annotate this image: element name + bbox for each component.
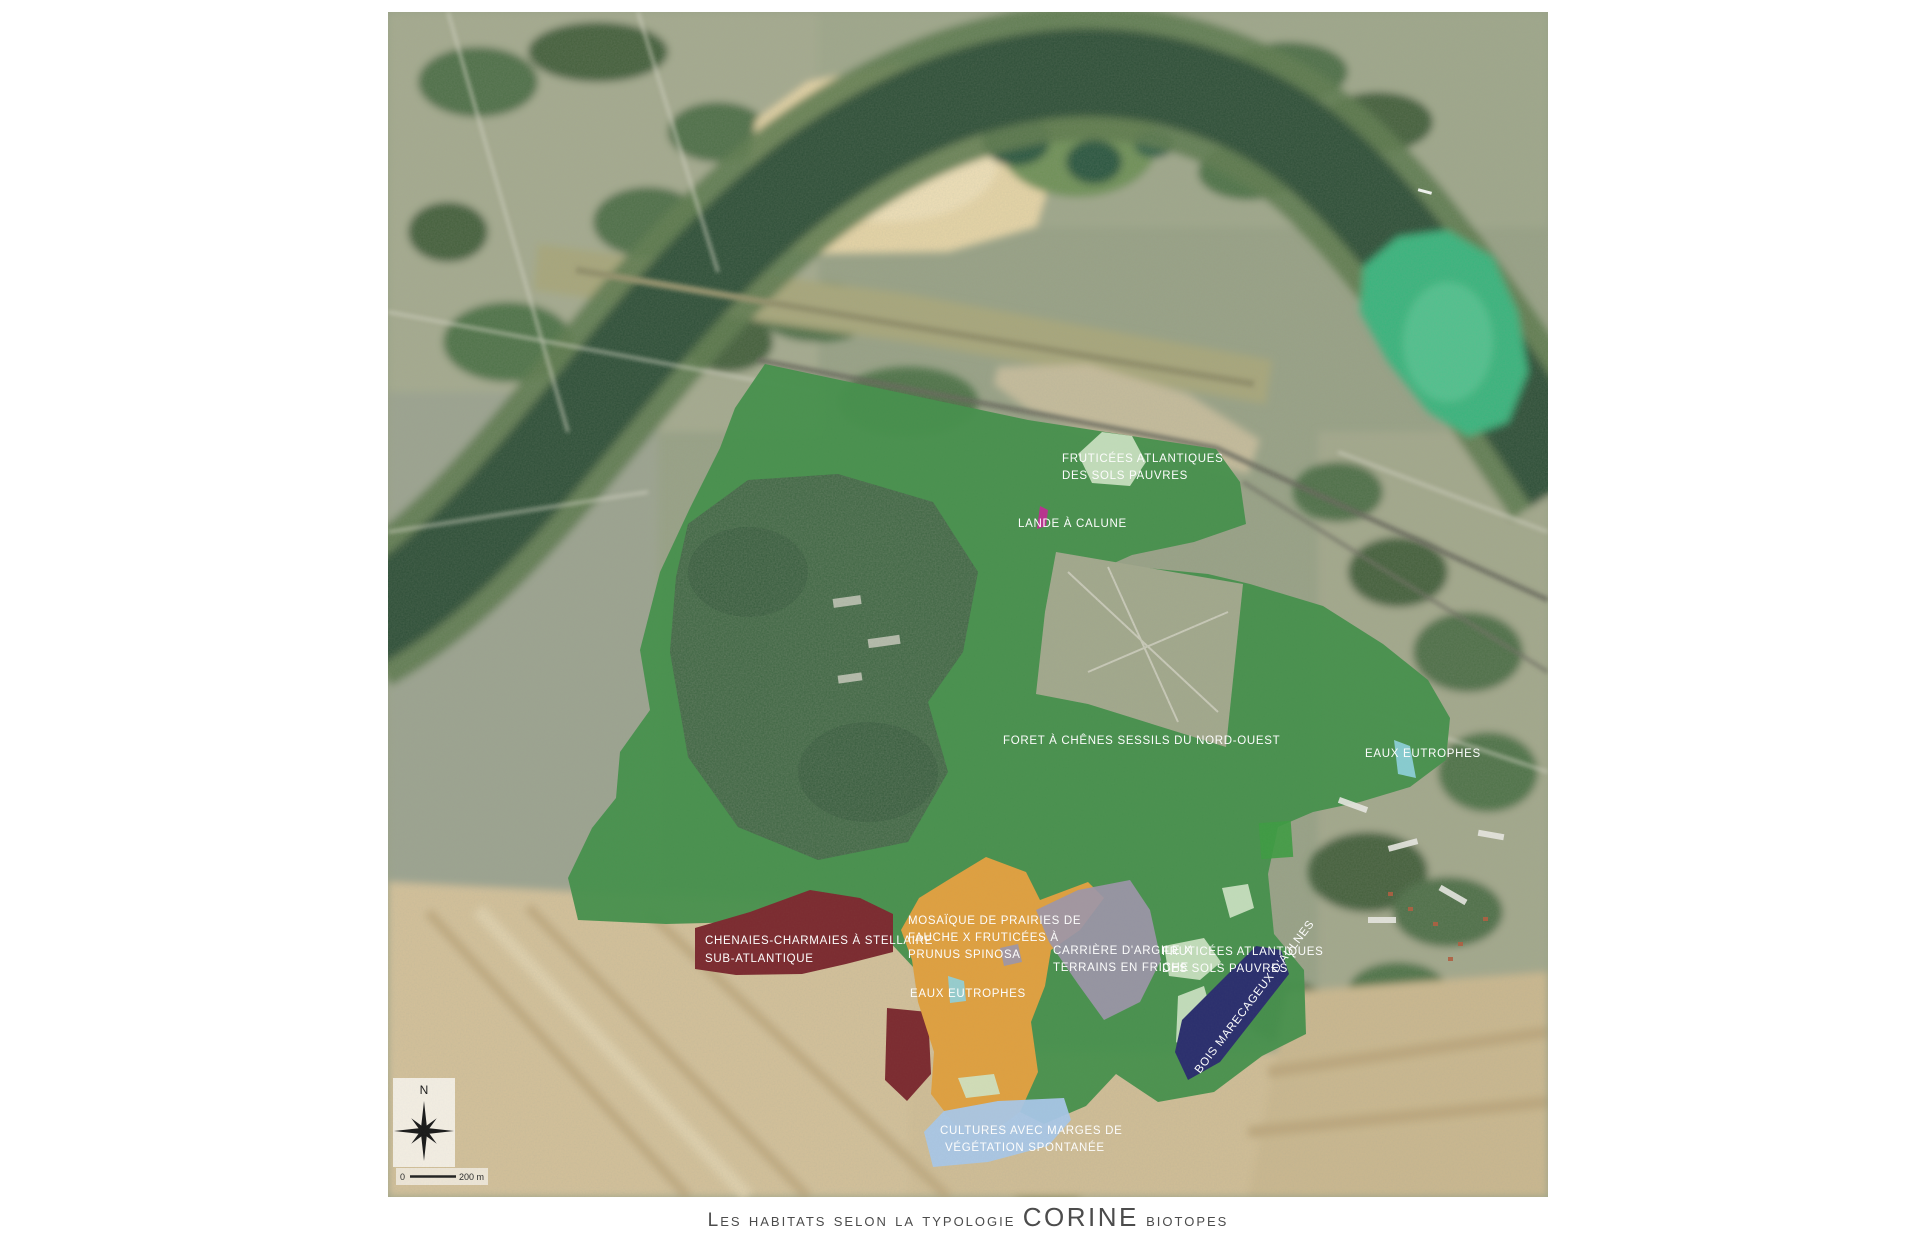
map-canvas: FRUTICÉES ATLANTIQUES DES SOLS PAUVRES L…: [388, 12, 1548, 1197]
map-layers: FRUTICÉES ATLANTIQUES DES SOLS PAUVRES L…: [388, 12, 1548, 1197]
map-caption: Les habitats selon la typologie CORINE b…: [388, 1202, 1548, 1233]
caption-prefix: Les habitats selon la typologie: [708, 1210, 1023, 1231]
caption-suffix: biotopes: [1139, 1210, 1229, 1231]
caption-corine: CORINE: [1023, 1202, 1139, 1232]
page: { "caption": { "prefix": "Les habitats s…: [0, 0, 1920, 1240]
global-grain: [388, 12, 1548, 1197]
aerial-habitat-map: FRUTICÉES ATLANTIQUES DES SOLS PAUVRES L…: [388, 12, 1548, 1197]
